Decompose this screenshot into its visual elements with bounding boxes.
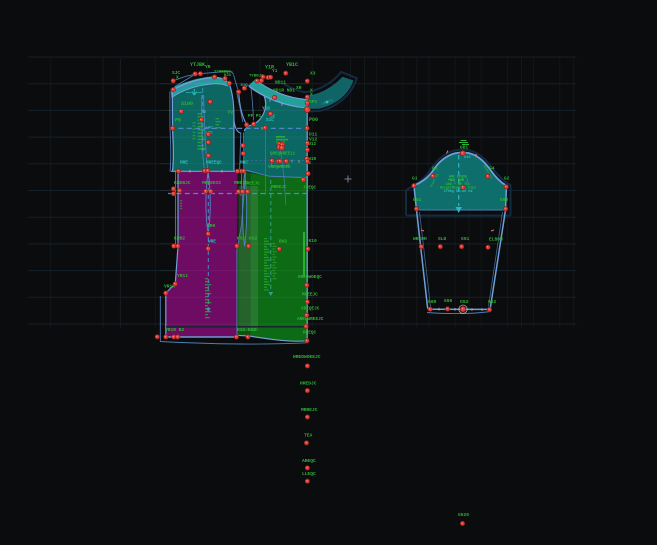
svg-text:QREQWREE11: QREQWREE11 xyxy=(270,153,296,157)
svg-text:KS1: KS1 xyxy=(237,236,246,242)
svg-text:X: X xyxy=(176,75,179,81)
svg-text:K10: K10 xyxy=(309,238,318,244)
svg-text:MREEJC: MREEJC xyxy=(302,293,318,298)
svg-text:G62: G62 xyxy=(500,197,509,203)
svg-text:VR1R B2: VR1R B2 xyxy=(165,327,185,333)
svg-text:YB1C: YB1C xyxy=(286,62,298,68)
svg-text:SLD: SLD xyxy=(438,236,447,242)
svg-text:G2: G2 xyxy=(504,176,510,182)
svg-text:KS2: KS2 xyxy=(249,236,258,242)
svg-text:MRC: MRC xyxy=(240,161,248,166)
svg-text:G4: G4 xyxy=(489,166,495,172)
svg-text:HREQWOEQC: HREQWOEQC xyxy=(298,275,322,280)
svg-text:TEA: TEA xyxy=(304,433,313,439)
svg-text:XR: XR xyxy=(296,85,302,91)
svg-text:MREEJC: MREEJC xyxy=(244,182,260,187)
svg-text:S100: S100 xyxy=(181,101,193,107)
svg-text:VREQWREEE: VREQWREEE xyxy=(268,166,291,170)
svg-text:AREQC: AREQC xyxy=(302,458,316,464)
svg-text:S1C: S1C xyxy=(266,118,274,123)
svg-text:G520: G520 xyxy=(458,512,469,518)
svg-text:MRREJC: MRREJC xyxy=(301,407,318,413)
svg-text:ND11: ND11 xyxy=(275,80,286,86)
svg-text:FREQC: FREQC xyxy=(304,187,317,191)
svg-text:ELBOW: ELBOW xyxy=(489,237,503,243)
svg-text:KREBJC: KREBJC xyxy=(174,180,191,186)
svg-text:G61: G61 xyxy=(413,197,422,203)
svg-text:G52: G52 xyxy=(460,299,469,305)
svg-text:AREQWREEJC: AREQWREEJC xyxy=(297,317,324,322)
svg-text:KR0: KR0 xyxy=(207,223,216,229)
svg-text:SP1: SP1 xyxy=(309,99,318,105)
svg-text:HREDWOEEJC: HREDWOEEJC xyxy=(293,354,321,360)
svg-text:V12: V12 xyxy=(309,137,318,143)
svg-text:KRB2: KRB2 xyxy=(174,236,185,242)
svg-text:MREEJC: MREEJC xyxy=(271,185,287,190)
svg-text:X3: X3 xyxy=(310,71,316,77)
svg-text:SREQEJC: SREQEJC xyxy=(301,307,320,312)
svg-text:P00: P00 xyxy=(309,117,318,123)
svg-text:MRE: MRE xyxy=(180,161,188,166)
svg-text:WREDR: WREDR xyxy=(413,236,427,242)
svg-text:RREQC: RREQC xyxy=(303,331,317,336)
svg-text:G51: G51 xyxy=(461,236,470,242)
svg-text:66R: 66R xyxy=(428,299,437,305)
svg-text:+AC: +AC xyxy=(206,127,214,131)
svg-text:G10: G10 xyxy=(464,156,470,160)
svg-text:YTJBK: YTJBK xyxy=(190,62,205,68)
svg-text:GB1: GB1 xyxy=(460,145,469,151)
svg-text:Y1: Y1 xyxy=(272,68,278,74)
svg-text:MREEQC: MREEQC xyxy=(206,161,222,166)
svg-text:G3: G3 xyxy=(432,166,438,172)
svg-text:P0: P0 xyxy=(175,118,181,124)
svg-text:K11 K12: K11 K12 xyxy=(237,327,257,333)
svg-text:176kg 59-86 cm: 176kg 59-86 cm xyxy=(444,189,473,194)
svg-text:G60: G60 xyxy=(444,298,453,304)
svg-text:MREEEIC: MREEEIC xyxy=(202,180,222,186)
svg-text:YR11: YR11 xyxy=(177,273,188,279)
svg-text:PF P1: PF P1 xyxy=(248,114,262,119)
svg-text:HREDJC: HREDJC xyxy=(300,381,317,387)
svg-text:LLEQC: LLEQC xyxy=(302,471,316,477)
svg-text:ND1R ND1: ND1R ND1 xyxy=(273,88,295,94)
svg-text:X: X xyxy=(310,92,313,98)
svg-text:YR: YR xyxy=(205,64,211,70)
svg-text:G62: G62 xyxy=(488,299,497,305)
svg-text:G1: G1 xyxy=(412,176,418,182)
